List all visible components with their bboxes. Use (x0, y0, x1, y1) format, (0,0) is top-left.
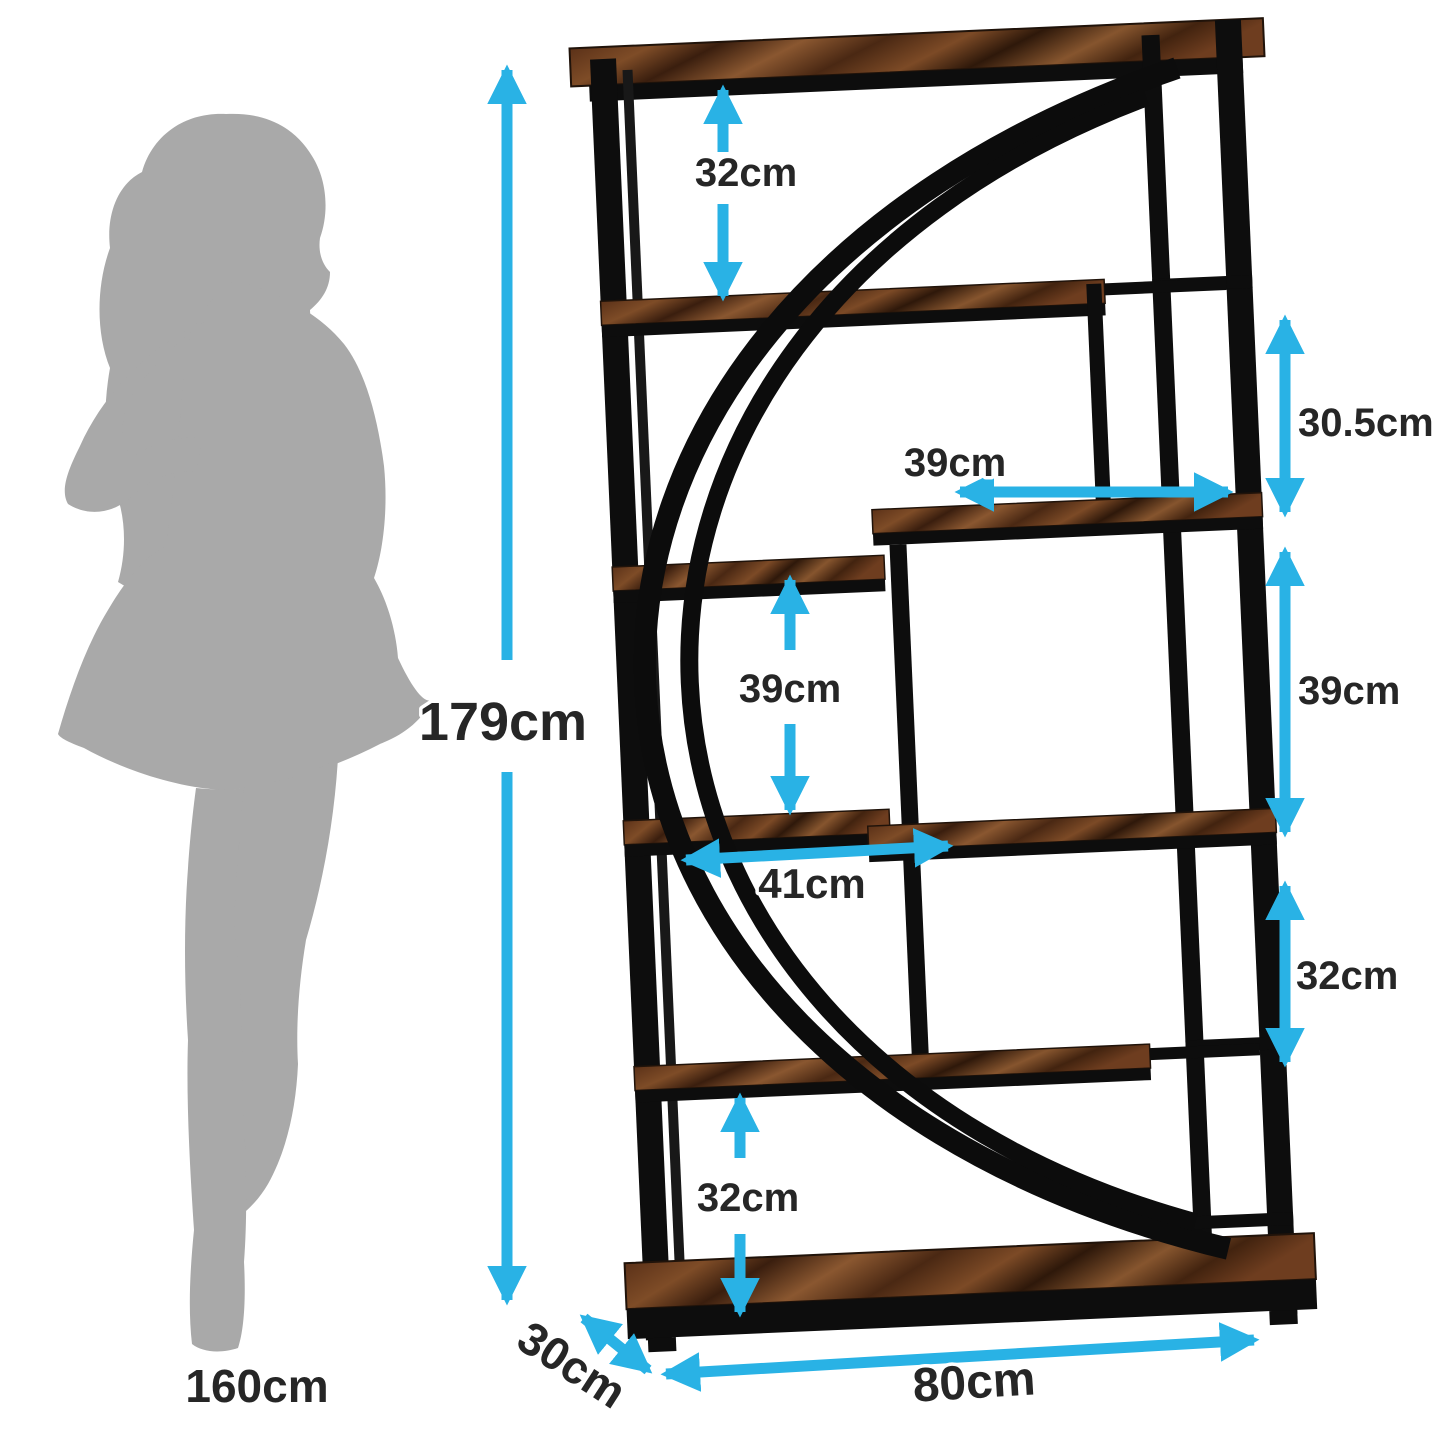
label-bottom-gap: 32cm (697, 1176, 799, 1220)
label-depth: 30cm (509, 1311, 636, 1419)
bookshelf-illustration (570, 18, 1320, 1353)
product-dimension-diagram: 179cm 32cm 30.5cm 39cm 39cm 39cm 41cm 32… (0, 0, 1445, 1445)
upper-right-box-post (1086, 283, 1111, 503)
woman-silhouette (58, 114, 432, 1352)
diagram-canvas: 179cm 32cm 30.5cm 39cm 39cm 39cm 41cm 32… (0, 0, 1445, 1445)
label-width: 80cm (911, 1352, 1037, 1412)
label-height-total: 179cm (419, 692, 587, 752)
label-person-height: 160cm (185, 1360, 328, 1412)
bookshelf-foot-left (648, 1337, 677, 1352)
label-box-height: 30.5cm (1298, 401, 1434, 445)
label-shelf-width-right: 39cm (904, 441, 1006, 485)
label-lower-right-gap: 32cm (1296, 954, 1398, 998)
bookshelf-right-inner-rail (1141, 35, 1215, 1311)
shelf-bottom-right-bar (1150, 1043, 1260, 1060)
bookshelf-center-post (889, 544, 929, 1070)
bookshelf-foot-right (1269, 1310, 1298, 1325)
label-mid-left-gap: 39cm (739, 667, 841, 711)
label-shelf-width-left: 41cm (758, 860, 865, 907)
label-top-gap: 32cm (695, 151, 797, 195)
label-cube-height: 39cm (1298, 669, 1400, 713)
